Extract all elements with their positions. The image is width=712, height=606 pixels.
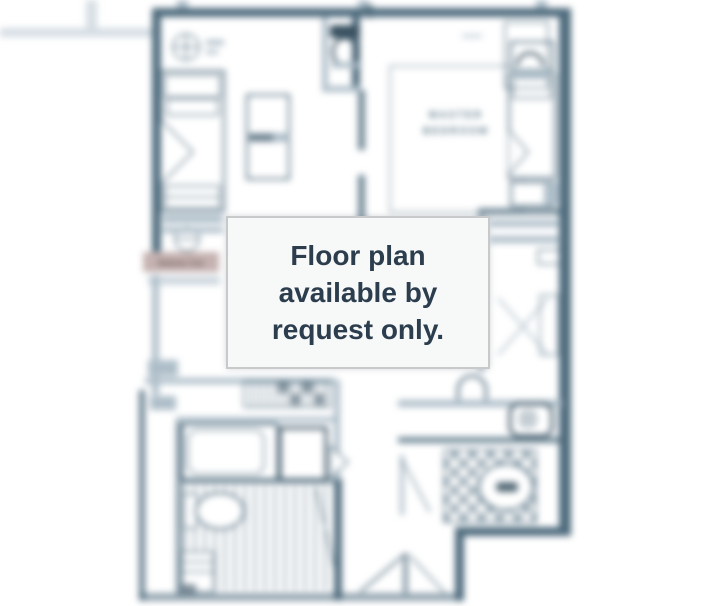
floor-plan-page: Selene Cor MASTER BEDROOM bbox=[0, 0, 712, 606]
watermark-label: Selene Cor bbox=[143, 252, 220, 285]
shower-door-icon bbox=[498, 295, 558, 355]
master-bedroom-label-line2: BEDROOM bbox=[423, 126, 489, 137]
notice-line-1: Floor plan bbox=[290, 237, 425, 274]
toilet-icon bbox=[330, 25, 360, 68]
basin-icon bbox=[479, 464, 533, 510]
watermark-text: Selene Cor bbox=[157, 258, 205, 268]
floor-plan-notice-box: Floor plan available by request only. bbox=[226, 216, 490, 369]
bed-icon bbox=[161, 71, 224, 211]
island-table-icon bbox=[247, 95, 289, 179]
bathtub-icon bbox=[182, 424, 278, 480]
master-bedroom-label-line1: MASTER bbox=[429, 110, 483, 121]
master-bed-icon bbox=[509, 42, 560, 206]
door-swing-icons bbox=[360, 455, 445, 593]
master-bedroom-label: MASTER BEDROOM bbox=[423, 110, 489, 137]
notice-line-2: available by bbox=[279, 274, 438, 311]
adjacent-structure-lines bbox=[0, 0, 152, 37]
kitchen-counter bbox=[398, 376, 562, 407]
toilet2-icon bbox=[184, 493, 244, 529]
bathroom-shelves bbox=[490, 220, 562, 264]
cabinet-icon bbox=[182, 552, 214, 594]
notice-line-3: request only. bbox=[272, 311, 444, 348]
kitchen-sink-icon bbox=[510, 404, 552, 436]
